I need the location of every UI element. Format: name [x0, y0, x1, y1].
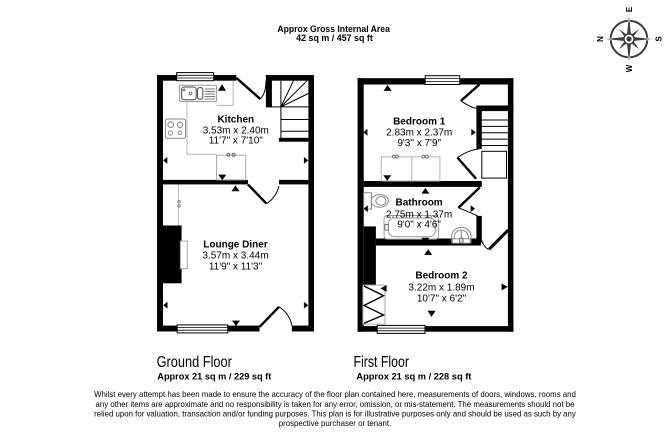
svg-text:3.57m x 3.44m: 3.57m x 3.44m: [202, 250, 268, 261]
svg-text:9'0" x 4'6": 9'0" x 4'6": [397, 220, 441, 231]
svg-text:Lounge Diner: Lounge Diner: [203, 239, 268, 250]
svg-text:10'7" x 6'2": 10'7" x 6'2": [417, 294, 467, 305]
svg-text:11'7" x 7'10": 11'7" x 7'10": [209, 135, 264, 146]
svg-text:11'9" x 11'3": 11'9" x 11'3": [209, 261, 263, 272]
svg-text:42 sq m / 457 sq ft: 42 sq m / 457 sq ft: [296, 33, 373, 43]
svg-text:Bedroom 1: Bedroom 1: [393, 117, 446, 128]
svg-text:9'3" x 7'9": 9'3" x 7'9": [397, 138, 441, 149]
svg-text:E: E: [625, 6, 634, 12]
svg-text:3.22m x 1.89m: 3.22m x 1.89m: [408, 282, 474, 293]
svg-text:Approx 21 sq m / 228 sq ft: Approx 21 sq m / 228 sq ft: [356, 371, 471, 382]
svg-text:Whilst every attempt has been: Whilst every attempt has been made to en…: [94, 390, 576, 399]
svg-text:Bathroom: Bathroom: [395, 198, 442, 209]
svg-text:Kitchen: Kitchen: [217, 114, 254, 125]
svg-text:Bedroom 2: Bedroom 2: [415, 270, 468, 281]
svg-text:W: W: [625, 64, 634, 72]
svg-text:S: S: [655, 36, 664, 42]
svg-text:Approx 21 sq m / 229 sq ft: Approx 21 sq m / 229 sq ft: [157, 371, 271, 382]
svg-text:any other items are approximat: any other items are approximate and no r…: [96, 400, 576, 409]
svg-text:N: N: [596, 36, 605, 42]
svg-text:First Floor: First Floor: [354, 354, 410, 371]
svg-text:Ground Floor: Ground Floor: [157, 354, 232, 371]
svg-text:prospective purchaser or tenan: prospective purchaser or tenant.: [279, 419, 392, 428]
svg-text:relied upon for valuation, tra: relied upon for valuation, transaction a…: [94, 410, 576, 419]
